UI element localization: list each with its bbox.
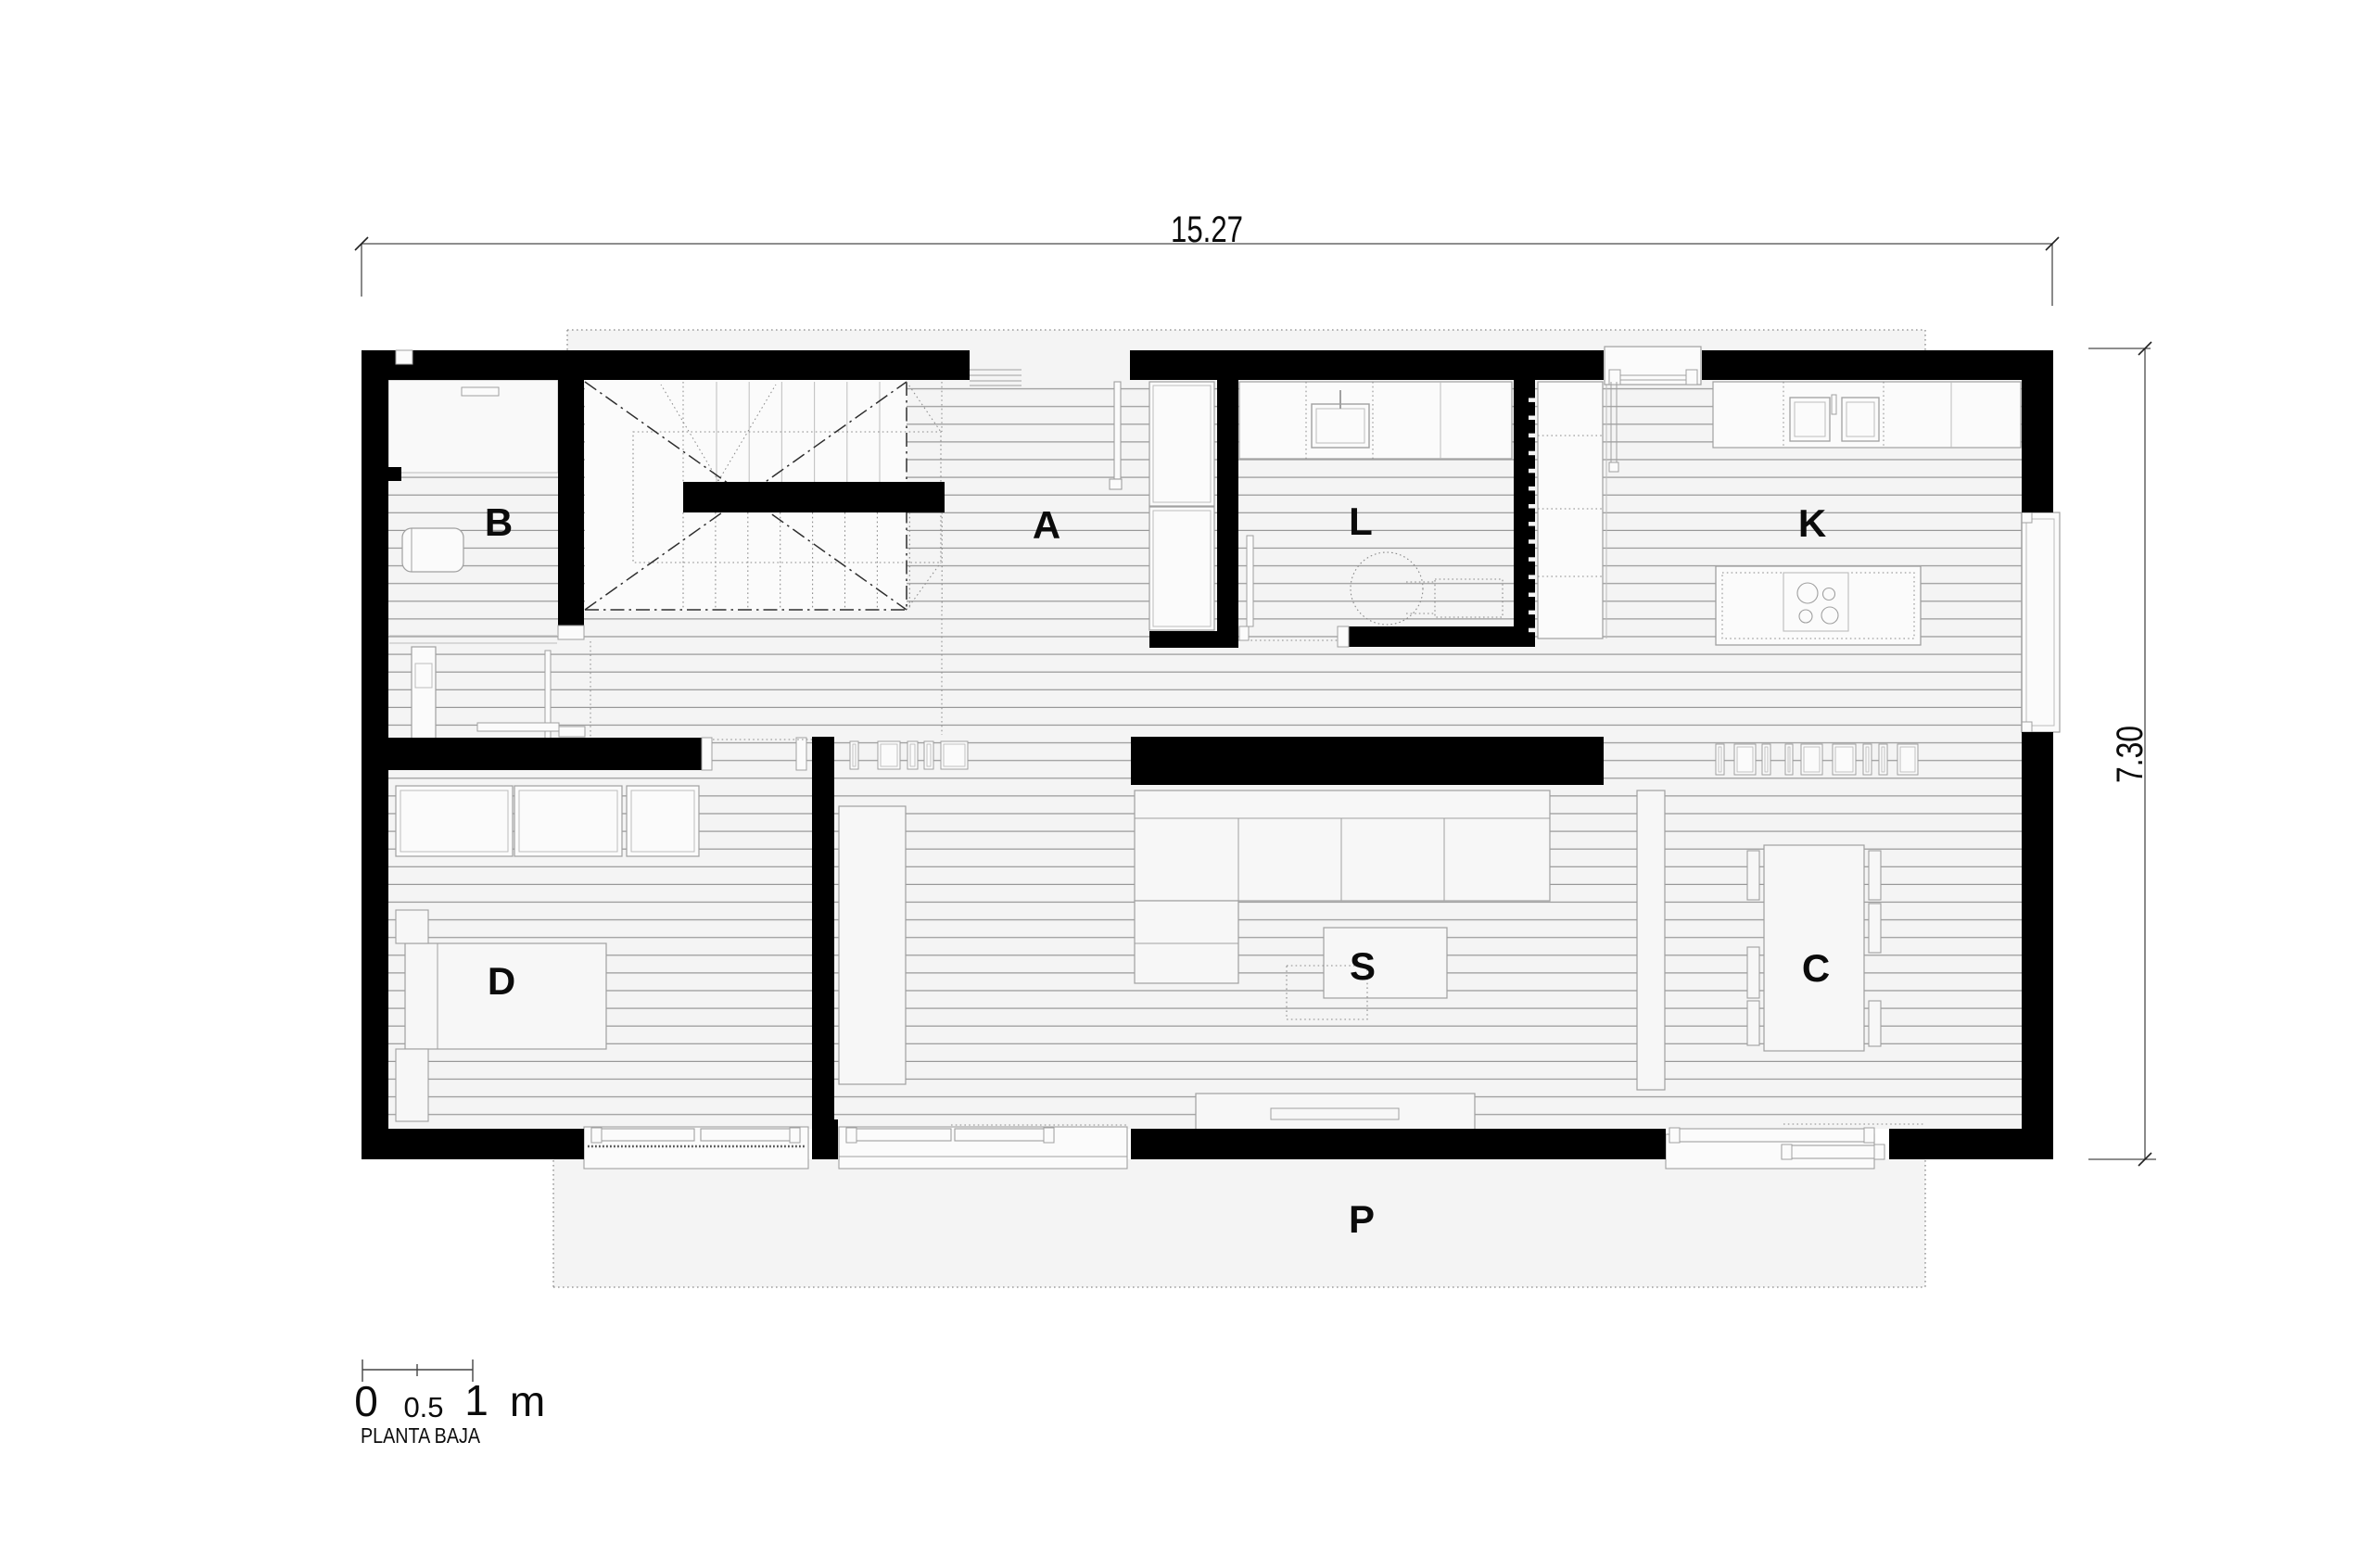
svg-text:K: K [1798,501,1826,545]
svg-text:A: A [1033,503,1060,547]
svg-text:C: C [1802,946,1830,990]
svg-text:0.5: 0.5 [403,1391,443,1423]
svg-text:S: S [1350,944,1376,988]
svg-text:L: L [1349,499,1373,543]
svg-text:1: 1 [464,1376,489,1424]
svg-text:PLANTA BAJA: PLANTA BAJA [361,1423,481,1448]
svg-text:15.27: 15.27 [1171,209,1243,250]
svg-text:7.30: 7.30 [2110,726,2151,783]
svg-text:B: B [485,500,513,544]
svg-text:0: 0 [354,1377,378,1425]
svg-text:P: P [1349,1197,1375,1241]
svg-text:m: m [510,1377,545,1425]
svg-text:D: D [488,959,515,1003]
